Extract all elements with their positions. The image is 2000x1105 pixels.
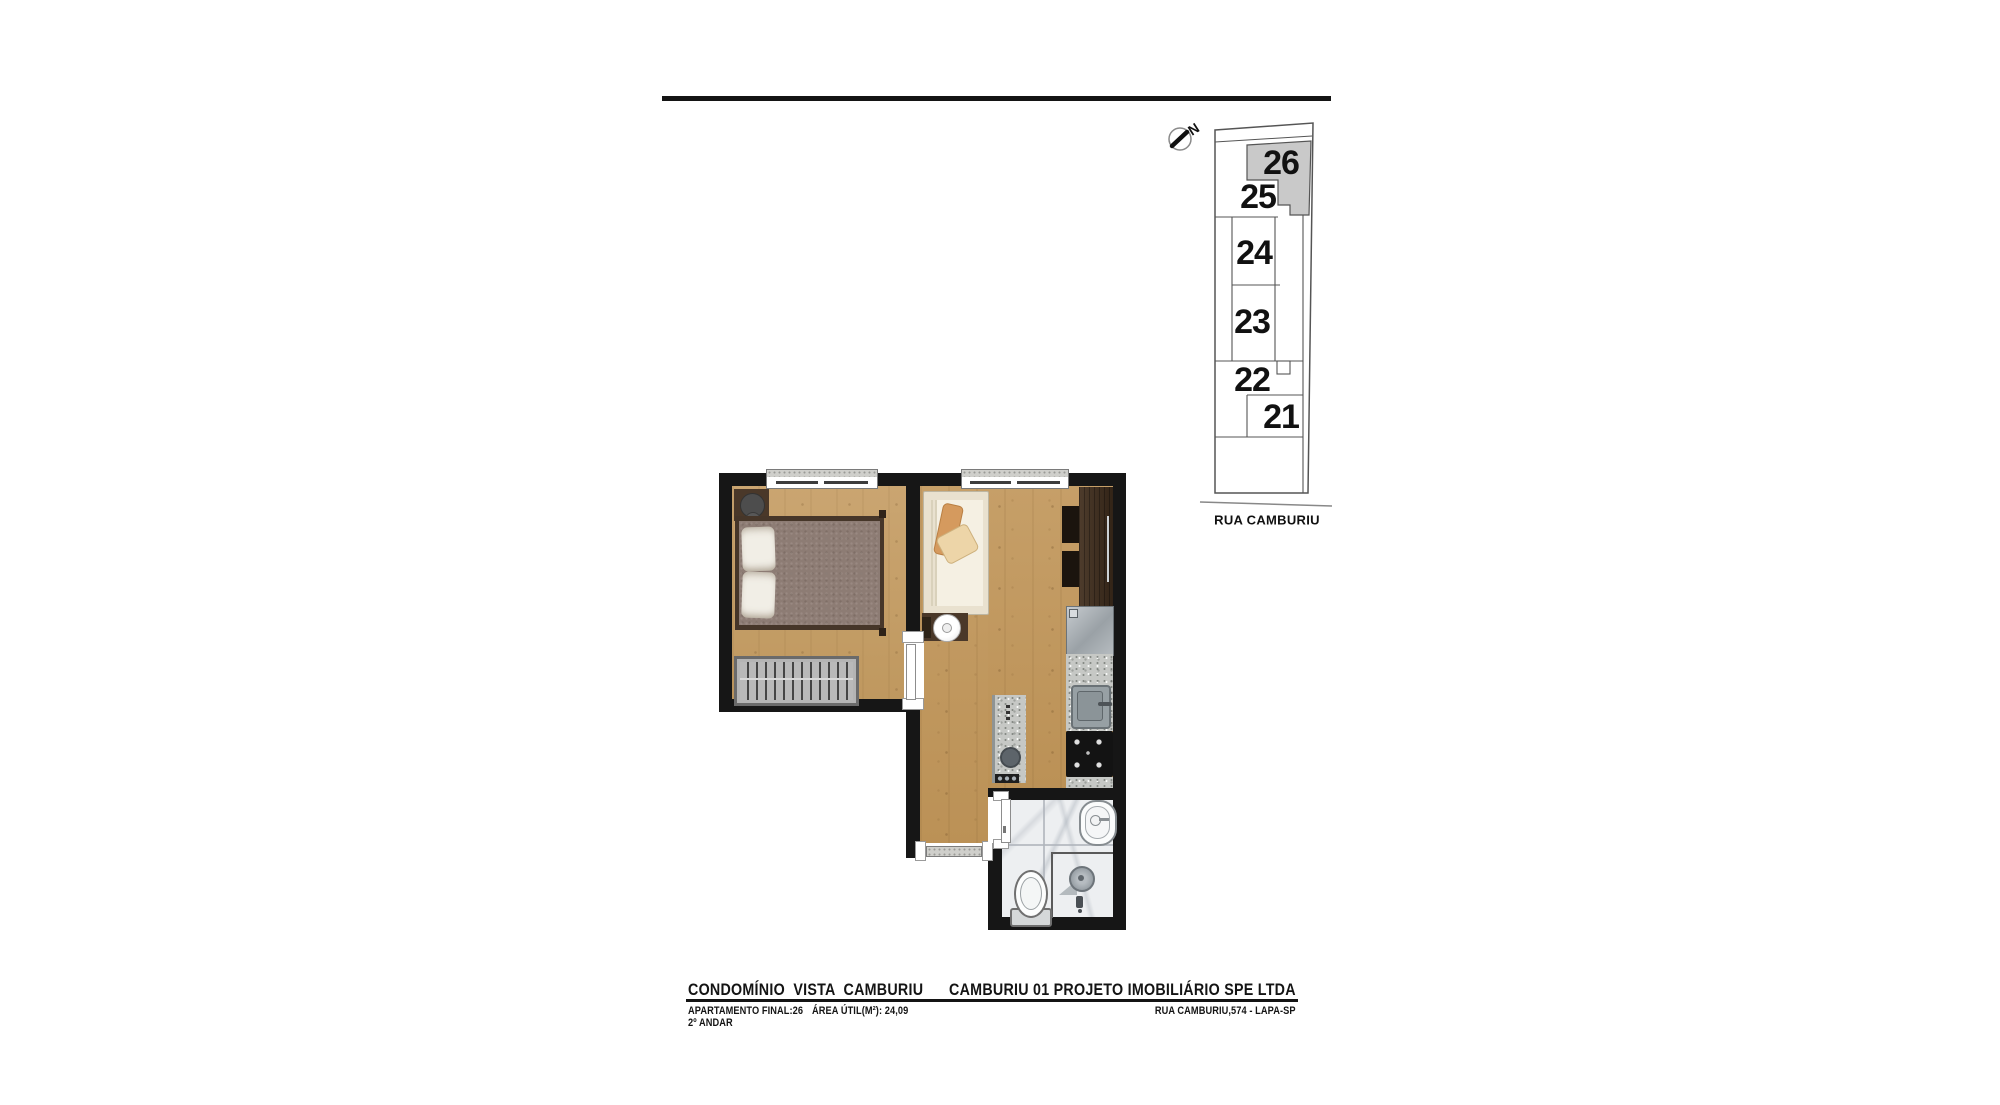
window-sill <box>767 470 877 477</box>
wardrobe-shelf-line <box>740 678 853 680</box>
unit-label-24: 24 <box>1236 234 1273 272</box>
apartment-label: APARTAMENTO FINAL:26 <box>688 1005 803 1017</box>
unit-label-25: 25 <box>1240 178 1276 216</box>
window-frame-bar <box>970 481 1010 484</box>
bed-post <box>879 510 886 518</box>
project-title: CONDOMÍNIO VISTA CAMBURIU <box>688 980 923 1000</box>
north-arrow-icon: N <box>1169 120 1202 150</box>
bathroom-vanity <box>1079 800 1117 846</box>
fridge <box>1066 606 1114 656</box>
island-sink-bowl <box>1000 747 1021 768</box>
cooktop <box>1066 731 1113 777</box>
sink-faucet-icon <box>1098 702 1112 706</box>
island-knob <box>1006 705 1010 708</box>
bed-pillow <box>741 526 776 571</box>
sofa-back-line <box>931 500 933 606</box>
bed-pillow <box>741 571 776 618</box>
street-line <box>1200 502 1332 506</box>
island-knob <box>1006 711 1010 714</box>
window-frame-bar <box>1017 481 1059 484</box>
door-jamb <box>902 631 924 643</box>
window-frame-bar <box>824 481 868 484</box>
floor-label: 2º ANDAR <box>688 1017 733 1029</box>
cabinet-handle <box>1107 516 1109 582</box>
window-sill <box>962 470 1068 477</box>
living-window <box>961 469 1069 489</box>
shower-valve-icon <box>1076 896 1083 908</box>
street-label: RUA CAMBURIU <box>1214 513 1320 528</box>
toilet-bowl <box>1020 877 1042 910</box>
bedroom-window <box>766 469 878 489</box>
wall-cabinet <box>1062 551 1079 587</box>
wardrobe <box>734 656 859 706</box>
door-handle-icon <box>1003 826 1006 833</box>
door-jamb <box>915 841 926 861</box>
unit-label-22: 22 <box>1234 361 1270 399</box>
counter-strip <box>1066 777 1113 788</box>
shower-glass <box>1051 852 1113 854</box>
area-label: ÁREA ÚTIL(M²): 24,09 <box>812 1005 908 1017</box>
window-frame-bar <box>776 481 818 484</box>
vanity-faucet-icon <box>1099 818 1109 821</box>
kitchen-sink <box>1071 685 1111 729</box>
shower-valve-icon <box>1078 909 1082 913</box>
unit-label-21: 21 <box>1263 398 1299 436</box>
address-label: RUA CAMBURIU,574 - LAPA-SP <box>1155 1005 1296 1017</box>
bed-post <box>879 628 886 636</box>
entry-threshold <box>926 846 982 857</box>
sofa <box>923 491 989 615</box>
table-lamp-finial <box>942 623 952 633</box>
island-base <box>995 774 1019 783</box>
door-jamb <box>982 841 993 861</box>
kitchen-island <box>992 695 1026 783</box>
wardrobe-rails <box>740 662 853 700</box>
shower-head-icon <box>1078 875 1084 881</box>
island-knob <box>1006 717 1010 720</box>
unit-label-23: 23 <box>1234 303 1270 341</box>
top-rule <box>662 96 1331 101</box>
bathroom-door-leaf <box>1001 799 1011 843</box>
wall-cabinet <box>1062 506 1079 543</box>
bedroom-door-leaf <box>906 644 916 700</box>
toilet <box>1014 870 1048 918</box>
developer-title: CAMBURIU 01 PROJETO IMOBILIÁRIO SPE LTDA <box>949 980 1296 1000</box>
title-rule <box>686 999 1298 1002</box>
key-plan: N 26 25 24 23 22 21 <box>1140 112 1350 532</box>
unit-label-26: 26 <box>1263 144 1299 182</box>
sink-basin <box>1077 691 1103 721</box>
plan-sheet: N 26 25 24 23 22 21 <box>0 0 2000 1105</box>
